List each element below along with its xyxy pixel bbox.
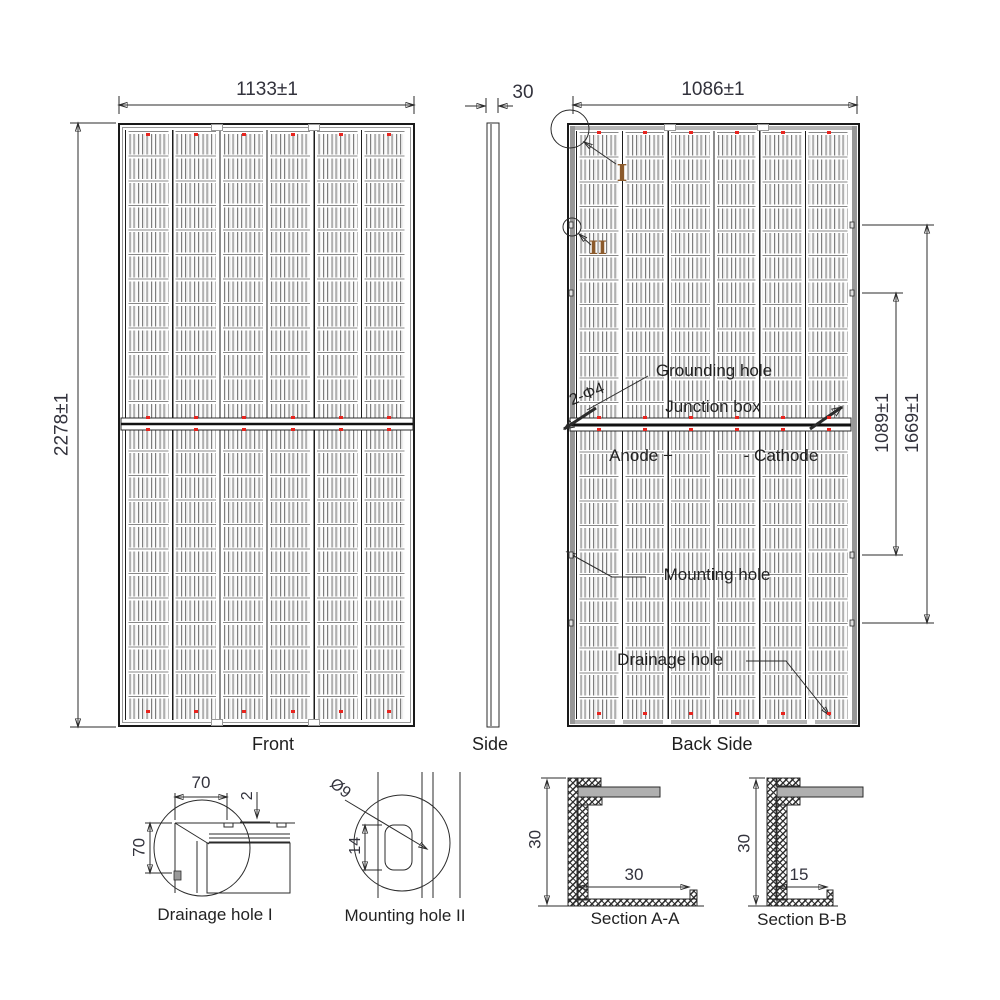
alignment-dot — [194, 710, 198, 713]
frame-notch — [211, 124, 223, 131]
alignment-dot — [689, 428, 693, 431]
title-section-b: Section B-B — [732, 911, 872, 930]
alignment-dot — [339, 428, 343, 431]
dim-drainage-lip: 2 — [239, 775, 257, 817]
dim-drainage-height: 70 — [131, 826, 150, 868]
alignment-dot — [242, 416, 246, 419]
alignment-dot — [194, 428, 198, 431]
title-mounting-detail: Mounting hole II — [325, 907, 485, 926]
dim-section-a-height: 30 — [527, 818, 546, 860]
alignment-dot — [387, 710, 391, 713]
alignment-dot — [597, 131, 601, 134]
alignment-dot — [146, 428, 150, 431]
front-dot-row-mid-lower — [124, 427, 413, 431]
alignment-dot — [643, 131, 647, 134]
alignment-dot — [827, 416, 831, 419]
alignment-dot — [781, 712, 785, 715]
alignment-dot — [291, 710, 295, 713]
front-dot-row-bottom — [124, 709, 413, 713]
back-frame-wall — [852, 126, 857, 724]
dim-section-b-height: 30 — [736, 822, 755, 864]
front-view-panel — [118, 123, 415, 727]
back-view-panel — [567, 123, 860, 727]
callout-anode: Anode + — [581, 447, 701, 466]
section-a-profile — [538, 778, 704, 906]
alignment-dot — [387, 428, 391, 431]
alignment-dot — [597, 712, 601, 715]
detail-drainage-hole — [145, 792, 295, 896]
dim-mounting-dia: Ø9 — [317, 768, 363, 809]
dim-drainage-width: 70 — [181, 774, 221, 793]
title-section-a: Section A-A — [565, 910, 705, 929]
alignment-dot — [291, 133, 295, 136]
alignment-dot — [827, 712, 831, 715]
label-side-view: Side — [450, 735, 530, 755]
alignment-dot — [735, 428, 739, 431]
alignment-dot — [194, 416, 198, 419]
alignment-dot — [689, 712, 693, 715]
callout-cathode: - Cathode — [721, 447, 841, 466]
alignment-dot — [242, 133, 246, 136]
dim-front-width: 1133±1 — [207, 80, 327, 101]
front-dot-row-top — [124, 132, 413, 136]
technical-drawing-page: 1133±1 30 1086±1 2278±1 1089±1 1669±1 Fr… — [0, 0, 1000, 1000]
alignment-dot — [242, 428, 246, 431]
label-back-view: Back Side — [642, 735, 782, 755]
alignment-dot — [146, 416, 150, 419]
left-dimension-lines — [70, 123, 116, 727]
frame-notch — [211, 719, 223, 726]
detail-marker-1: I — [613, 161, 631, 186]
alignment-dot — [643, 428, 647, 431]
alignment-dot — [339, 416, 343, 419]
frame-notch — [308, 124, 320, 131]
alignment-dot — [291, 416, 295, 419]
dim-section-a-flange: 30 — [614, 866, 654, 885]
section-b-profile — [748, 778, 863, 906]
back-frame-wall — [570, 126, 575, 724]
dim-mounting-len: 14 — [347, 825, 365, 867]
dim-front-height: 2278±1 — [53, 364, 74, 484]
callout-junction-box: Junction box — [643, 398, 783, 417]
back-frame-wall — [575, 720, 852, 724]
dim-back-width: 1086±1 — [653, 80, 773, 101]
alignment-dot — [291, 428, 295, 431]
alignment-dot — [597, 428, 601, 431]
front-dot-row-mid-upper — [124, 415, 413, 419]
alignment-dot — [735, 712, 739, 715]
alignment-dot — [339, 133, 343, 136]
alignment-dot — [597, 416, 601, 419]
callout-mounting-hole: Mounting hole — [642, 566, 792, 585]
alignment-dot — [781, 428, 785, 431]
back-dot-row-mid-lower — [576, 427, 852, 431]
alignment-dot — [387, 416, 391, 419]
alignment-dot — [643, 712, 647, 715]
alignment-dot — [387, 133, 391, 136]
alignment-dot — [827, 428, 831, 431]
back-dot-row-bottom — [576, 711, 852, 715]
label-front-view: Front — [223, 735, 323, 755]
alignment-dot — [827, 131, 831, 134]
frame-notch — [308, 719, 320, 726]
front-cell-grid — [125, 130, 408, 720]
alignment-dot — [781, 131, 785, 134]
callout-drainage-hole: Drainage hole — [595, 651, 745, 670]
side-view — [487, 123, 499, 727]
detail-marker-2: II — [587, 238, 609, 259]
alignment-dot — [146, 710, 150, 713]
alignment-dot — [242, 710, 246, 713]
dim-mount-outer: 1669±1 — [903, 363, 923, 483]
alignment-dot — [194, 133, 198, 136]
alignment-dot — [339, 710, 343, 713]
dim-side-thickness: 30 — [503, 83, 543, 104]
back-dot-row-top — [576, 130, 852, 134]
callout-grounding-hole: Grounding hole — [634, 362, 794, 381]
dim-section-b-flange: 15 — [779, 866, 819, 885]
dim-mount-inner: 1089±1 — [873, 363, 893, 483]
back-cell-grid — [576, 131, 851, 719]
alignment-dot — [146, 133, 150, 136]
alignment-dot — [689, 131, 693, 134]
alignment-dot — [735, 131, 739, 134]
title-drainage-detail: Drainage hole I — [135, 906, 295, 925]
